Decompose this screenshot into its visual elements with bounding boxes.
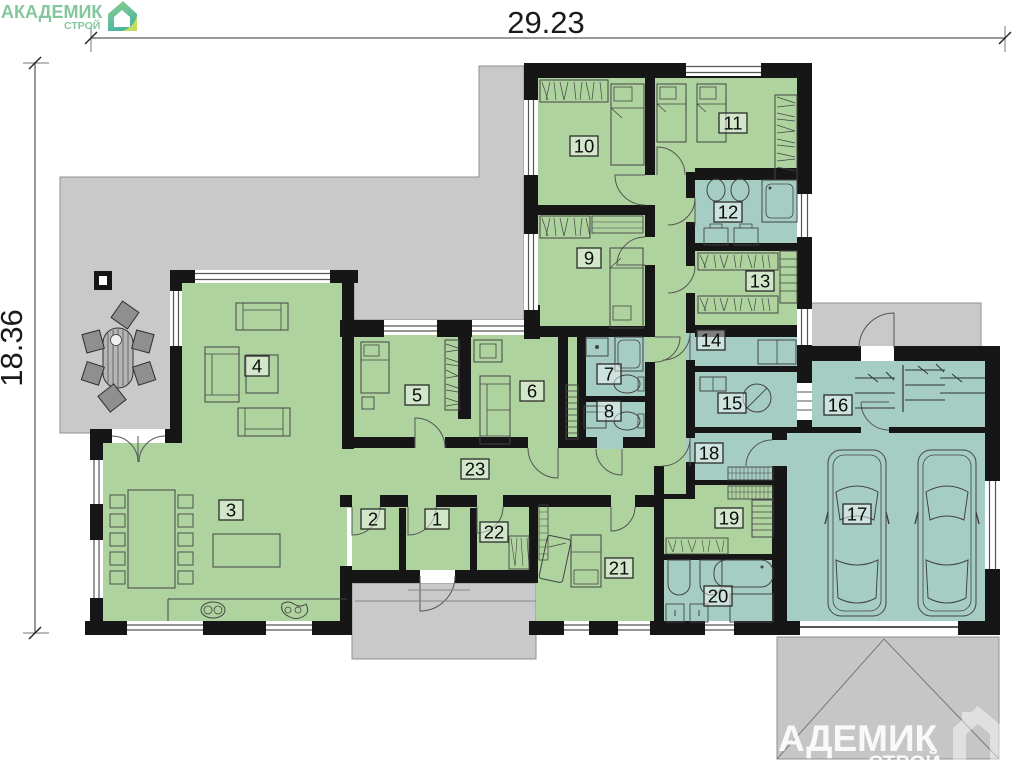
svg-text:15: 15 [722, 393, 743, 414]
svg-text:14: 14 [701, 330, 722, 351]
svg-text:СТРОЙ: СТРОЙ [64, 19, 100, 32]
svg-text:16: 16 [828, 395, 849, 416]
svg-text:21: 21 [609, 558, 630, 579]
svg-text:19: 19 [719, 508, 740, 529]
svg-text:3: 3 [226, 500, 236, 521]
svg-text:20: 20 [708, 586, 729, 607]
svg-text:18.36: 18.36 [0, 309, 29, 387]
svg-text:СТРОЙ: СТРОЙ [868, 751, 941, 775]
svg-text:22: 22 [484, 522, 505, 543]
svg-text:1: 1 [432, 509, 442, 530]
svg-text:10: 10 [574, 136, 595, 157]
svg-text:6: 6 [527, 381, 537, 402]
svg-text:2: 2 [368, 509, 378, 530]
svg-text:5: 5 [412, 385, 422, 406]
svg-text:8: 8 [604, 401, 614, 422]
svg-text:23: 23 [465, 459, 486, 480]
svg-text:29.23: 29.23 [507, 5, 585, 40]
svg-text:12: 12 [718, 202, 739, 223]
svg-text:17: 17 [847, 504, 868, 525]
svg-text:АКАДЕМИК: АКАДЕМИК [1, 2, 103, 22]
svg-text:7: 7 [604, 364, 614, 385]
svg-text:18: 18 [699, 443, 720, 464]
svg-text:4: 4 [252, 356, 262, 377]
svg-text:11: 11 [723, 113, 742, 134]
svg-text:9: 9 [584, 248, 594, 269]
svg-text:13: 13 [750, 271, 771, 292]
